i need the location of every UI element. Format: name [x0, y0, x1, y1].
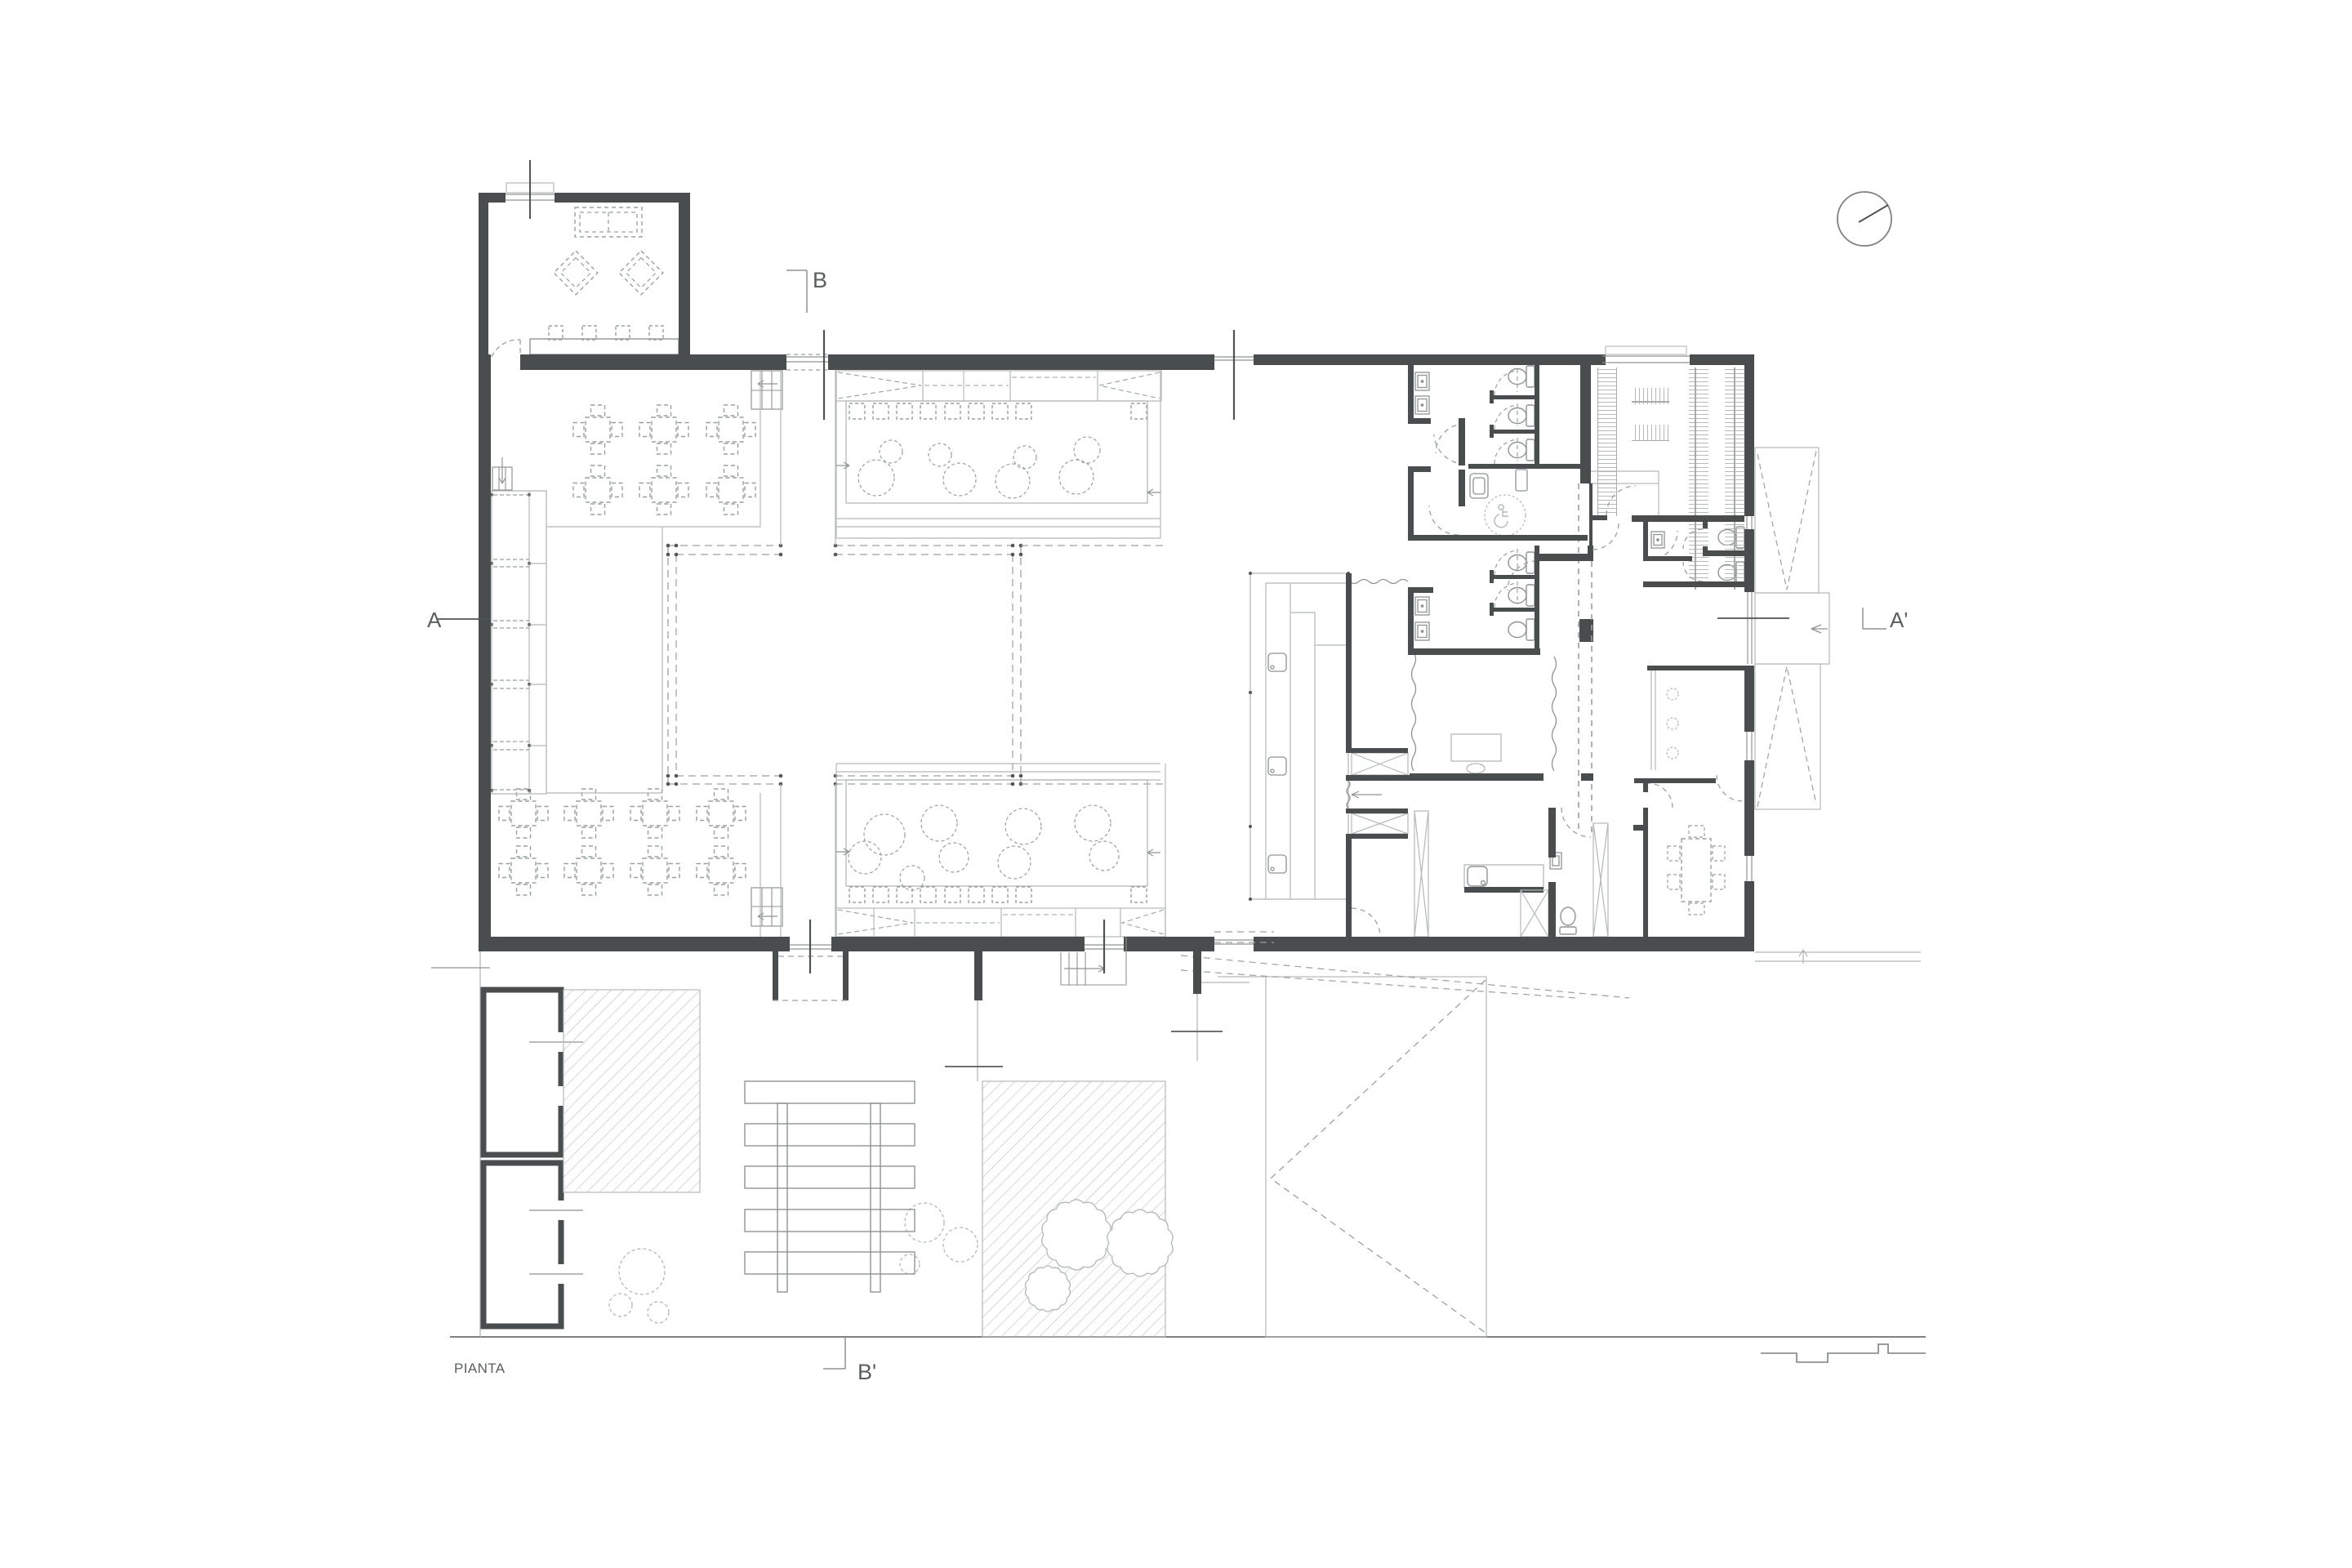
svg-text:B': B' [857, 1360, 876, 1384]
svg-text:A': A' [1890, 608, 1908, 632]
svg-text:B: B [813, 268, 827, 292]
svg-text:A: A [427, 608, 442, 632]
svg-text:PIANTA: PIANTA [454, 1361, 506, 1376]
